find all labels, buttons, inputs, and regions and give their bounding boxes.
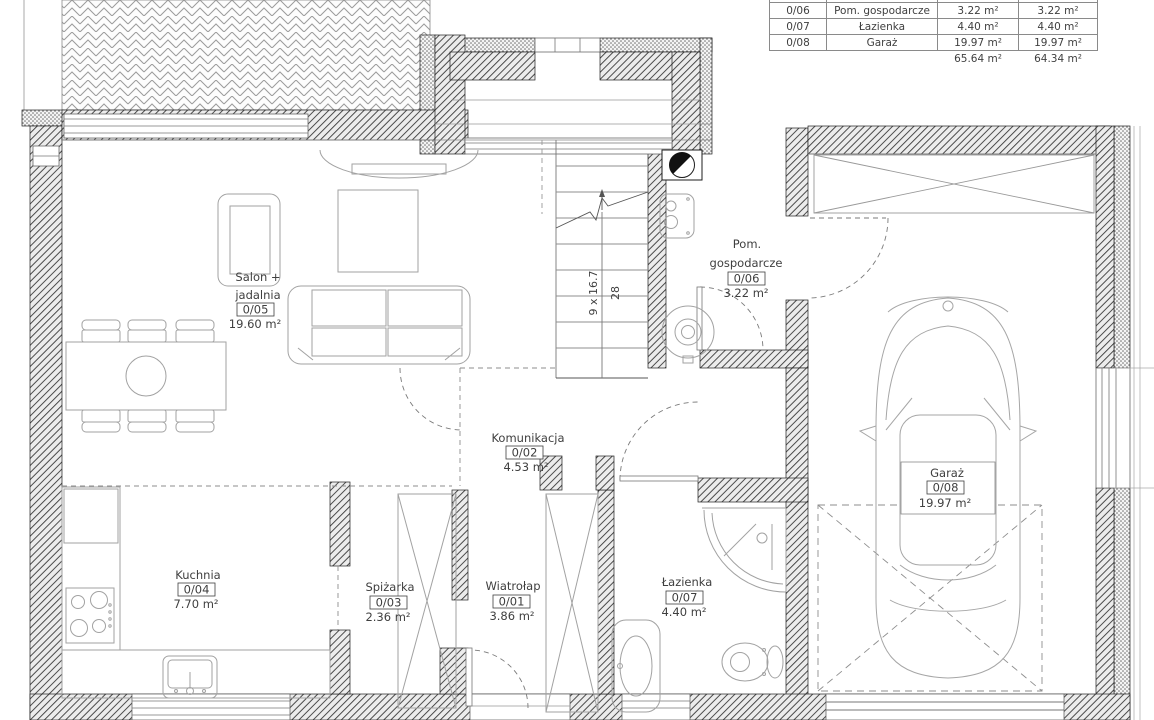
cooktop xyxy=(66,588,114,643)
room-name: gospodarcze xyxy=(710,256,783,270)
room-id: 0/02 xyxy=(512,446,538,460)
door-leaves xyxy=(466,287,702,706)
toilet xyxy=(722,643,783,681)
room-id: 0/01 xyxy=(499,595,525,609)
door-arc-lazienka xyxy=(620,402,698,480)
room-name: jadalnia xyxy=(234,288,280,302)
dining-table xyxy=(66,342,226,410)
room-name: Pom. xyxy=(733,237,761,251)
table-cell-id: 0/06 xyxy=(770,3,827,19)
table-row: 0/07 Łazienka 4.40 m² 4.40 m² xyxy=(770,19,1098,35)
room-area: 19.60 m² xyxy=(229,317,281,331)
table-cell-id: 0/07 xyxy=(770,19,827,35)
room-label-garaz: Garaż 0/08 19.97 m² xyxy=(901,462,995,514)
area-summary-table: 0/06 Pom. gospodarcze 3.22 m² 3.22 m² 0/… xyxy=(769,0,1098,67)
shower xyxy=(702,508,786,592)
bay-window xyxy=(535,38,600,52)
table-cell-area-actual: 19.97 m² xyxy=(1019,35,1098,51)
room-labels: Salon + jadalnia 0/05 19.60 m² Pom. gosp… xyxy=(173,237,995,624)
coffee-table xyxy=(338,190,418,272)
room-area: 3.22 m² xyxy=(723,286,768,300)
room-name: Łazienka xyxy=(661,575,713,589)
stairs-dimensions: 9 x 16.7 28 xyxy=(587,271,622,316)
door-leaf-lazienka xyxy=(620,476,698,481)
room-area: 3.86 m² xyxy=(489,609,534,623)
garage-reserved-zone xyxy=(818,505,1042,691)
room-id: 0/07 xyxy=(672,591,698,605)
floor-plan-page: 9 x 16.7 28 xyxy=(0,0,1154,720)
kitchen-bottom-counter xyxy=(62,650,330,698)
sofa xyxy=(288,286,470,364)
table-cell-area-design: 19.97 m² xyxy=(938,35,1019,51)
table-cell-name: Garaż xyxy=(827,35,938,51)
bathroom-window xyxy=(622,694,690,720)
room-label-salon: Salon + jadalnia 0/05 19.60 m² xyxy=(229,270,281,331)
table-cell-area-design: 4.40 m² xyxy=(938,19,1019,35)
floor-plan-drawing: 9 x 16.7 28 xyxy=(0,0,1154,720)
table-cell-name: Pom. gospodarcze xyxy=(827,3,938,19)
room-label-kuchnia: Kuchnia 0/04 7.70 m² xyxy=(173,568,220,611)
room-area: 4.53 m² xyxy=(503,460,548,474)
entrance-opening xyxy=(470,694,570,720)
tv-cabinet-inner xyxy=(352,164,446,174)
table-row: 0/06 Pom. gospodarcze 3.22 m² 3.22 m² xyxy=(770,3,1098,19)
room-label-lazienka: Łazienka 0/07 4.40 m² xyxy=(661,575,713,619)
room-name: Spiżarka xyxy=(365,580,414,594)
room-id: 0/08 xyxy=(933,481,959,495)
utility-fixtures xyxy=(660,150,714,363)
dining-chairs xyxy=(82,320,214,432)
room-label-spizarka: Spiżarka 0/03 2.36 m² xyxy=(365,580,414,624)
room-name: Kuchnia xyxy=(175,568,220,582)
room-id: 0/03 xyxy=(376,596,402,610)
room-area: 2.36 m² xyxy=(365,610,410,624)
stairs-dimension-text: 9 x 16.7 xyxy=(587,271,600,316)
room-name: Garaż xyxy=(930,466,964,480)
room-id: 0/06 xyxy=(734,272,760,286)
table-cell-name: Łazienka xyxy=(827,19,938,35)
door-swings xyxy=(400,218,888,708)
table-row: 0/08 Garaż 19.97 m² 19.97 m² xyxy=(770,35,1098,51)
room-name: Komunikacja xyxy=(491,431,564,445)
room-area: 7.70 m² xyxy=(173,597,218,611)
garage-window xyxy=(1096,368,1130,488)
table-cell-area-actual: 4.40 m² xyxy=(1019,19,1098,35)
salon-window xyxy=(64,114,308,138)
room-area: 4.40 m² xyxy=(661,605,706,619)
room-area: 19.97 m² xyxy=(919,496,971,510)
table-cell-id: 0/08 xyxy=(770,35,827,51)
chimney-vent-symbol xyxy=(662,150,702,180)
table-total-design: 65.64 m² xyxy=(938,51,1019,68)
terrace-paving xyxy=(24,0,430,126)
stairs-count-text: 28 xyxy=(609,286,622,300)
garage-door xyxy=(826,694,1064,720)
door-arc-salon-komunikacja xyxy=(400,368,462,430)
room-name: Salon + xyxy=(235,270,280,284)
room-label-wiatrolap: Wiatrołap 0/01 3.86 m² xyxy=(486,579,541,623)
table-cell-area-design: 3.22 m² xyxy=(938,3,1019,19)
table-total-actual: 64.34 m² xyxy=(1019,51,1098,68)
left-wall-vent xyxy=(33,146,59,166)
table-row-totals: 65.64 m² 64.34 m² xyxy=(770,51,1098,68)
room-name: Wiatrołap xyxy=(486,579,541,593)
garage-lintel xyxy=(814,155,1094,213)
room-id: 0/04 xyxy=(184,583,210,597)
room-boundaries xyxy=(62,368,556,630)
kitchen-tall-cabinet xyxy=(64,489,118,543)
garage-elements xyxy=(814,155,1094,691)
table-cell-area-actual: 3.22 m² xyxy=(1019,3,1098,19)
kitchen-sink xyxy=(163,656,217,698)
room-id: 0/05 xyxy=(243,303,269,317)
door-arc-garage xyxy=(808,218,888,298)
staircase xyxy=(542,140,648,378)
porch-window xyxy=(465,138,672,154)
door-leaf-entrance xyxy=(466,648,472,706)
wardrobe-cabinet xyxy=(546,494,598,712)
